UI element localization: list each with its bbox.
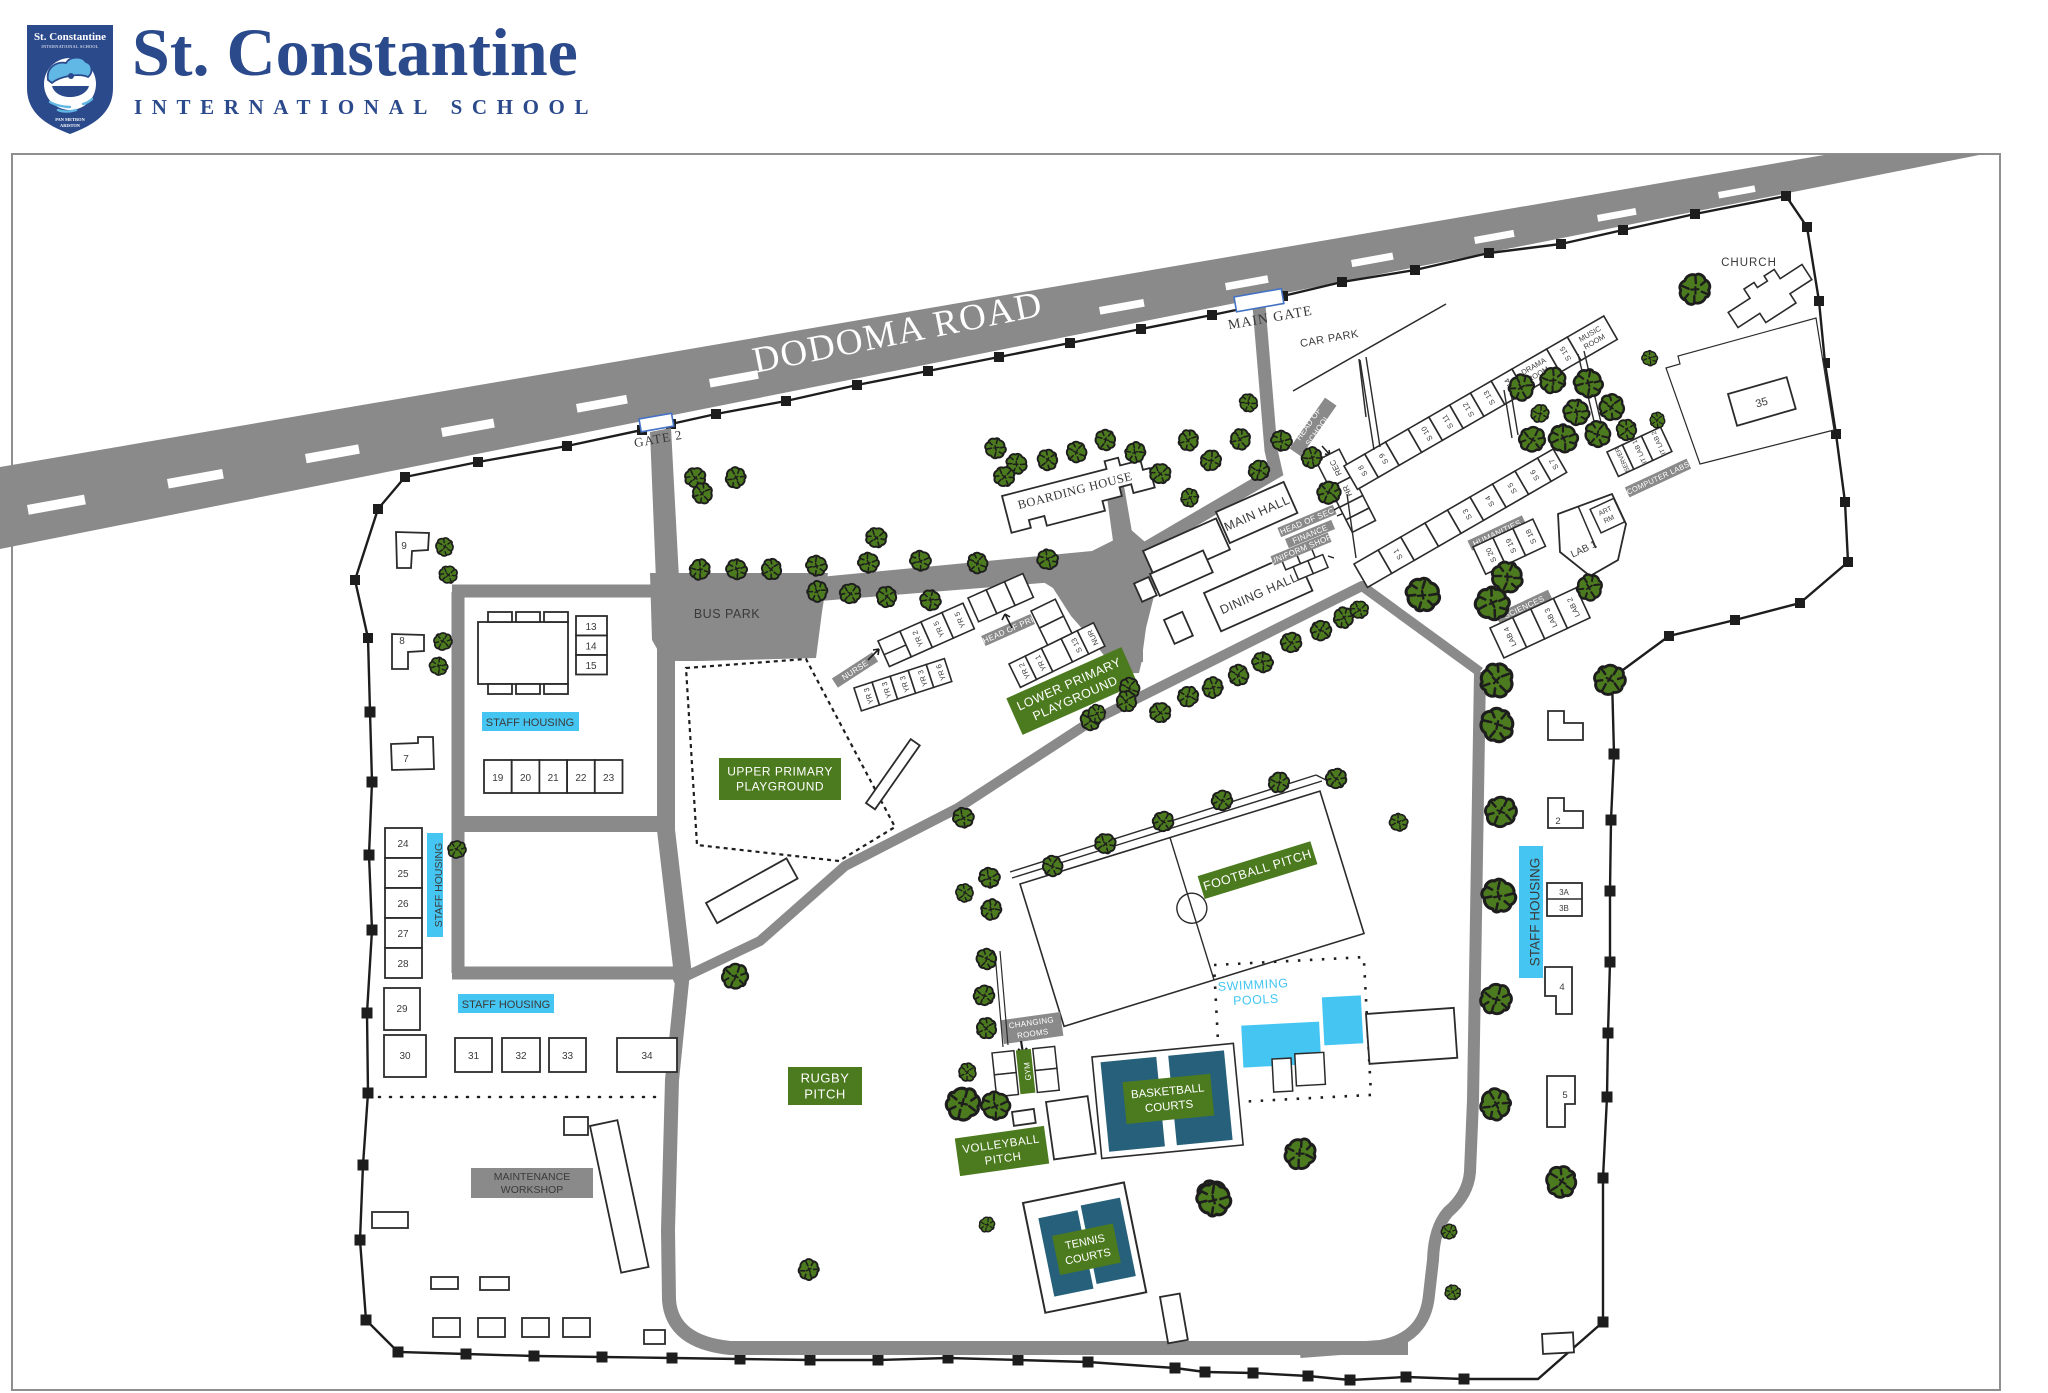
svg-text:ARISTON: ARISTON	[60, 123, 81, 128]
svg-text:UPPER PRIMARY: UPPER PRIMARY	[727, 765, 833, 779]
svg-text:MAINTENANCE: MAINTENANCE	[494, 1171, 570, 1183]
svg-text:33: 33	[562, 1051, 574, 1062]
svg-text:9: 9	[401, 541, 407, 552]
svg-text:3B: 3B	[1559, 904, 1569, 913]
svg-text:St. Constantine: St. Constantine	[34, 31, 106, 43]
svg-text:31: 31	[468, 1051, 480, 1062]
svg-text:13: 13	[585, 622, 597, 633]
svg-text:3A: 3A	[1559, 888, 1569, 897]
svg-text:POOLS: POOLS	[1233, 992, 1279, 1008]
svg-text:23: 23	[603, 773, 615, 784]
svg-text:PITCH: PITCH	[804, 1087, 846, 1102]
svg-text:CHURCH: CHURCH	[1721, 257, 1777, 269]
svg-text:26: 26	[397, 899, 409, 910]
svg-text:St. Constantine: St. Constantine	[132, 14, 578, 90]
svg-text:22: 22	[575, 773, 587, 784]
svg-text:28: 28	[397, 959, 409, 970]
svg-text:24: 24	[397, 839, 409, 850]
svg-text:STAFF HOUSING: STAFF HOUSING	[462, 999, 550, 1011]
svg-text:21: 21	[548, 773, 560, 784]
svg-text:15: 15	[585, 661, 597, 672]
svg-text:PAN METRON: PAN METRON	[55, 117, 85, 122]
svg-text:WORKSHOP: WORKSHOP	[501, 1184, 563, 1196]
svg-text:20: 20	[520, 773, 532, 784]
svg-text:BUS PARK: BUS PARK	[694, 607, 760, 621]
svg-text:INTERNATIONAL SCHOOL: INTERNATIONAL SCHOOL	[134, 95, 598, 119]
svg-text:14: 14	[585, 642, 597, 653]
svg-text:34: 34	[641, 1051, 653, 1062]
svg-text:4: 4	[1559, 982, 1564, 993]
svg-text:STAFF HOUSING: STAFF HOUSING	[433, 843, 445, 927]
svg-text:32: 32	[515, 1051, 527, 1062]
svg-text:PLAYGROUND: PLAYGROUND	[736, 780, 824, 794]
svg-text:19: 19	[492, 773, 504, 784]
svg-text:29: 29	[396, 1004, 408, 1015]
svg-text:5: 5	[1562, 1090, 1567, 1101]
svg-text:30: 30	[399, 1051, 411, 1062]
svg-text:27: 27	[397, 929, 409, 940]
svg-text:INTERNATIONAL SCHOOL: INTERNATIONAL SCHOOL	[41, 44, 98, 49]
svg-text:2: 2	[1555, 816, 1560, 827]
svg-text:STAFF HOUSING: STAFF HOUSING	[1528, 858, 1543, 967]
svg-text:25: 25	[397, 869, 409, 880]
svg-text:7: 7	[403, 754, 409, 765]
svg-text:RUGBY: RUGBY	[801, 1071, 850, 1086]
svg-text:STAFF HOUSING: STAFF HOUSING	[486, 717, 574, 729]
svg-text:8: 8	[399, 636, 405, 647]
